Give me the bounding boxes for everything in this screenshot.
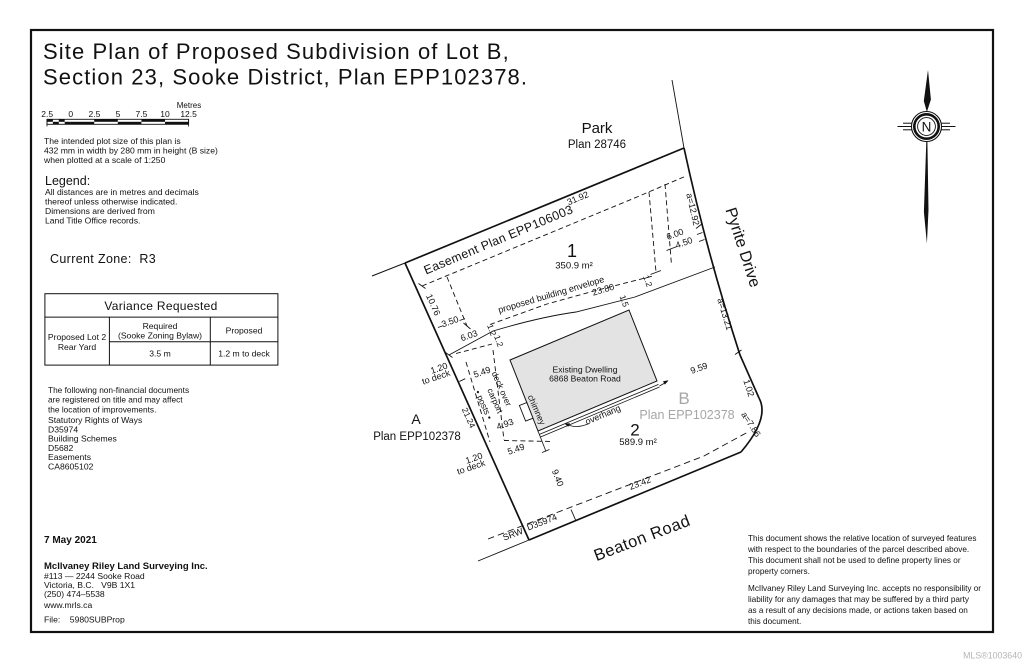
svg-text:23.42: 23.42 xyxy=(628,474,653,491)
svg-text:This document shows the relati: This document shows the relative locatio… xyxy=(748,534,976,543)
svg-text:Plan 28746: Plan 28746 xyxy=(568,139,626,151)
svg-text:0: 0 xyxy=(68,109,73,119)
svg-text:12.5: 12.5 xyxy=(180,109,197,119)
svg-text:Section 23, Sooke District, Pl: Section 23, Sooke District, Plan EPP1023… xyxy=(43,65,528,90)
svg-text:6868 Beaton Road: 6868 Beaton Road xyxy=(549,374,621,384)
svg-text:(Sooke Zoning Bylaw): (Sooke Zoning Bylaw) xyxy=(118,331,202,341)
svg-text:thereof unless otherwise indic: thereof unless otherwise indicated. xyxy=(45,197,177,207)
svg-text:Variance Requested: Variance Requested xyxy=(104,299,217,313)
svg-text:liability for any damages that: liability for any damages that may be su… xyxy=(748,595,970,604)
svg-text:Legend:: Legend: xyxy=(45,174,90,188)
svg-text:CA8605102: CA8605102 xyxy=(48,462,94,472)
svg-text:9.40: 9.40 xyxy=(550,468,566,488)
svg-text:31.92: 31.92 xyxy=(566,189,591,207)
svg-text:property corners.: property corners. xyxy=(748,567,810,576)
svg-text:MLS®1003640: MLS®1003640 xyxy=(963,651,1022,661)
svg-text:Proposed Lot 2: Proposed Lot 2 xyxy=(48,332,107,342)
svg-text:1.02: 1.02 xyxy=(741,378,756,398)
svg-text:A: A xyxy=(411,411,421,427)
svg-text:Dimensions are derived from: Dimensions are derived from xyxy=(45,206,155,216)
svg-text:Land Title Office records.: Land Title Office records. xyxy=(45,216,140,226)
svg-text:4.93: 4.93 xyxy=(495,417,515,432)
svg-text:6.03: 6.03 xyxy=(459,328,479,343)
svg-text:The following non-financial do: The following non-financial documents xyxy=(48,385,189,395)
svg-text:432 mm in width by 280 mm in h: 432 mm in width by 280 mm in height (B s… xyxy=(44,146,218,156)
svg-text:Site Plan of Proposed Subdivis: Site Plan of Proposed Subdivision of Lot… xyxy=(43,39,510,64)
svg-text:1.2 m to deck: 1.2 m to deck xyxy=(218,349,270,359)
svg-text:Rear Yard: Rear Yard xyxy=(58,342,97,352)
svg-text:The intended plot size of this: The intended plot size of this plan is xyxy=(44,136,181,146)
svg-text:2.5: 2.5 xyxy=(41,109,53,119)
svg-text:McIlvaney Riley Land Surveying: McIlvaney Riley Land Surveying Inc. acce… xyxy=(748,584,981,593)
svg-text:1.2: 1.2 xyxy=(641,274,655,289)
svg-text:This document shall not be use: This document shall not be used to defin… xyxy=(748,556,961,565)
svg-text:2.5: 2.5 xyxy=(88,109,100,119)
svg-text:All distances are in metres an: All distances are in metres and decimals xyxy=(45,187,199,197)
svg-text:Proposed: Proposed xyxy=(226,326,263,336)
svg-text:Current Zone: R3: Current Zone: R3 xyxy=(50,252,156,266)
svg-text:Beaton Road: Beaton Road xyxy=(591,512,693,565)
svg-text:when plotted at a scale of 1:2: when plotted at a scale of 1:250 xyxy=(43,155,166,165)
svg-text:589.9 m²: 589.9 m² xyxy=(619,437,657,448)
svg-text:File: 5980SUBProp: File: 5980SUBProp xyxy=(44,615,125,625)
svg-text:3.5 m: 3.5 m xyxy=(149,349,171,359)
svg-text:Plan EPP102378: Plan EPP102378 xyxy=(639,408,734,422)
svg-text:a=13.21: a=13.21 xyxy=(715,297,734,331)
svg-text:as a result of any decisions m: as a result of any decisions made, or ac… xyxy=(748,606,968,615)
svg-text:10: 10 xyxy=(160,109,170,119)
svg-text:5.49: 5.49 xyxy=(472,365,492,380)
svg-text:with respect to the boundaries: with respect to the boundaries of the pa… xyxy=(747,545,969,554)
svg-text:B: B xyxy=(678,389,689,408)
svg-text:Required: Required xyxy=(143,321,178,331)
svg-text:1: 1 xyxy=(567,241,577,261)
svg-text:21.24: 21.24 xyxy=(460,406,478,430)
svg-text:the location of improvements.: the location of improvements. xyxy=(48,404,156,414)
svg-text:SRW: SRW xyxy=(501,526,525,543)
svg-text:5: 5 xyxy=(116,109,121,119)
svg-text:350.9 m²: 350.9 m² xyxy=(555,261,593,272)
svg-text:7 May 2021: 7 May 2021 xyxy=(44,535,97,546)
svg-text:9.59: 9.59 xyxy=(689,360,709,375)
svg-text:7.5: 7.5 xyxy=(135,109,147,119)
svg-text:Park: Park xyxy=(582,120,613,137)
svg-text:1.2: 1.2 xyxy=(492,334,506,349)
svg-text:this document.: this document. xyxy=(748,617,801,626)
svg-text:1.5: 1.5 xyxy=(618,294,632,309)
svg-text:www.mrls.ca: www.mrls.ca xyxy=(43,600,92,610)
svg-text:N: N xyxy=(922,119,932,134)
svg-text:Plan EPP102378: Plan EPP102378 xyxy=(373,431,461,443)
svg-text:3.50: 3.50 xyxy=(440,314,460,329)
svg-text:Pyrite Drive: Pyrite Drive xyxy=(721,206,763,290)
svg-text:a=12.92: a=12.92 xyxy=(684,192,701,226)
svg-text:are registered on title and ma: are registered on title and may affect xyxy=(48,395,183,405)
svg-text:(250) 474–5538: (250) 474–5538 xyxy=(44,589,105,599)
svg-text:5.49: 5.49 xyxy=(506,442,526,457)
svg-text:Easement Plan EPP106003: Easement Plan EPP106003 xyxy=(422,202,575,277)
